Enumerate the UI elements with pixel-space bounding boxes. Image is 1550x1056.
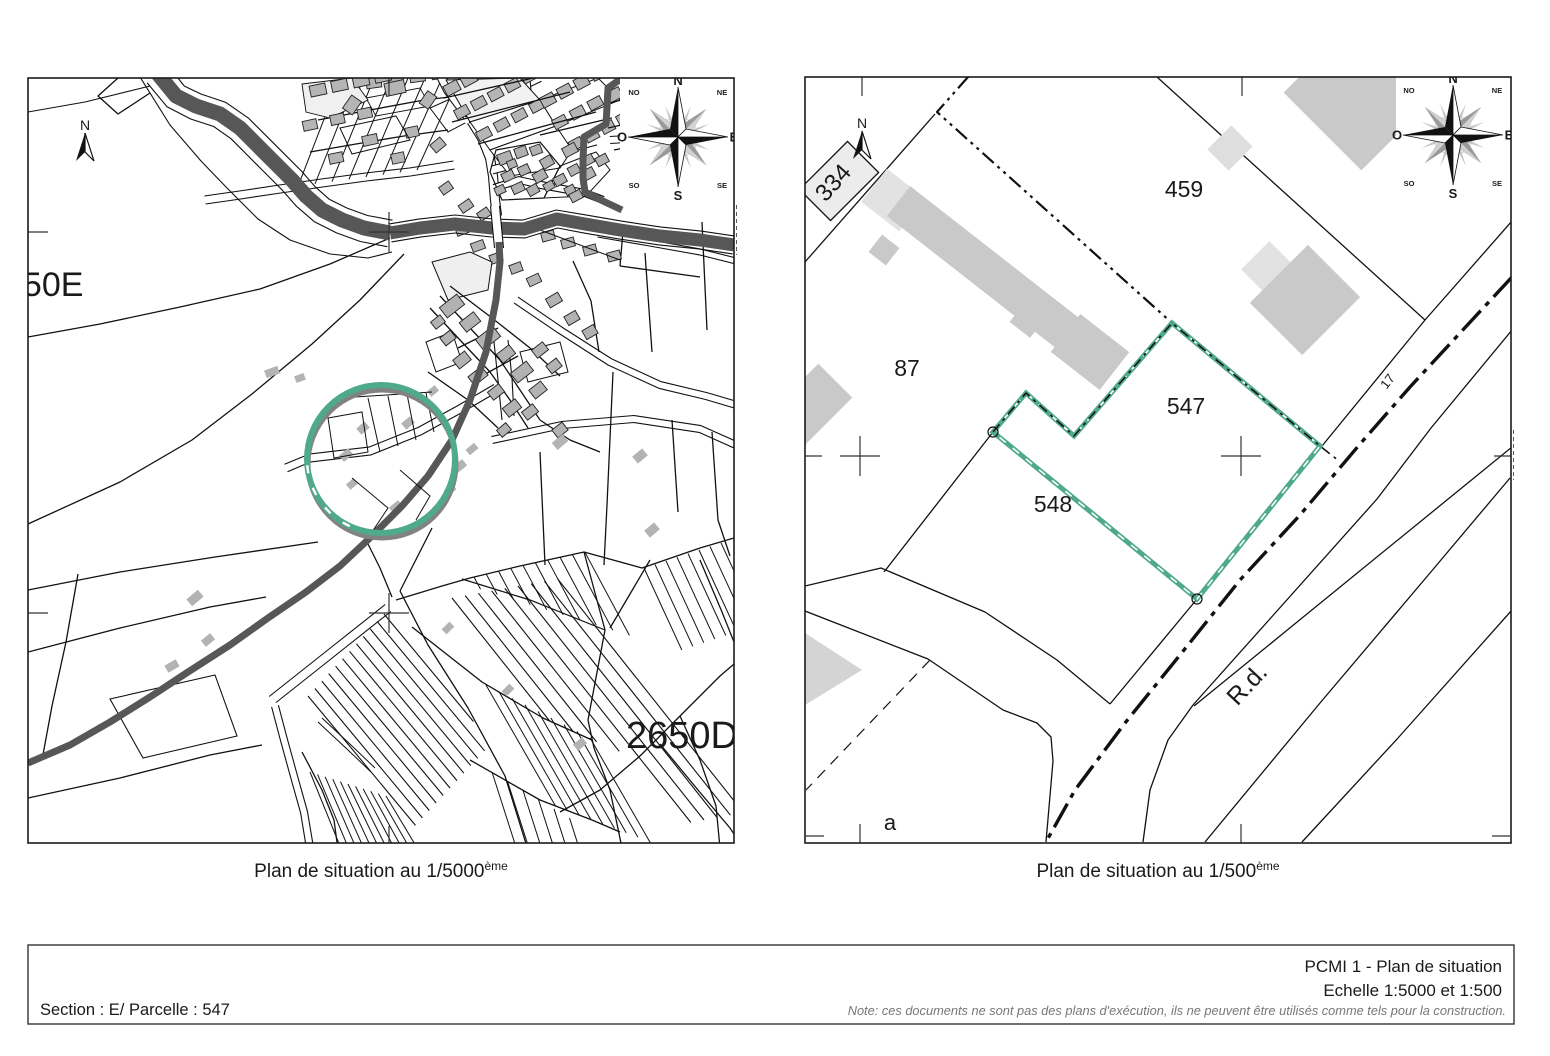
svg-text:Echelle 1:5000 et 1:500: Echelle 1:5000 et 1:500 [1323, 981, 1502, 1000]
svg-text:PCMI 1 - Plan de situation: PCMI 1 - Plan de situation [1305, 957, 1502, 976]
svg-text:Section : E/ Parcelle : 547: Section : E/ Parcelle : 547 [40, 1001, 230, 1019]
svg-text:N: N [857, 115, 867, 131]
svg-text:SO: SO [1404, 179, 1415, 188]
svg-text:SO: SO [629, 181, 640, 190]
svg-text:NE: NE [1492, 86, 1502, 95]
svg-text:547: 547 [1167, 393, 1205, 419]
svg-text:87: 87 [894, 355, 920, 381]
svg-text:S: S [674, 188, 683, 203]
svg-text:NO: NO [1403, 86, 1414, 95]
svg-text:Note: ces documents ne sont pa: Note: ces documents ne sont pas des plan… [848, 1003, 1506, 1018]
svg-text:NO: NO [628, 88, 639, 97]
svg-text:N: N [80, 117, 90, 133]
svg-text:O: O [617, 130, 627, 145]
svg-text:SE: SE [717, 181, 727, 190]
svg-text:S: S [1449, 186, 1458, 201]
svg-text:459: 459 [1165, 176, 1203, 202]
svg-text:NE: NE [717, 88, 727, 97]
svg-text:Plan de situation au 1/5000ème: Plan de situation au 1/5000ème [254, 859, 508, 882]
svg-text:O: O [1392, 128, 1402, 143]
svg-text:a: a [884, 810, 897, 835]
svg-text:Plan de situation au 1/500ème: Plan de situation au 1/500ème [1036, 859, 1279, 882]
svg-text:548: 548 [1034, 491, 1072, 517]
svg-text:2650D: 2650D [626, 715, 738, 757]
svg-text:SE: SE [1492, 179, 1502, 188]
